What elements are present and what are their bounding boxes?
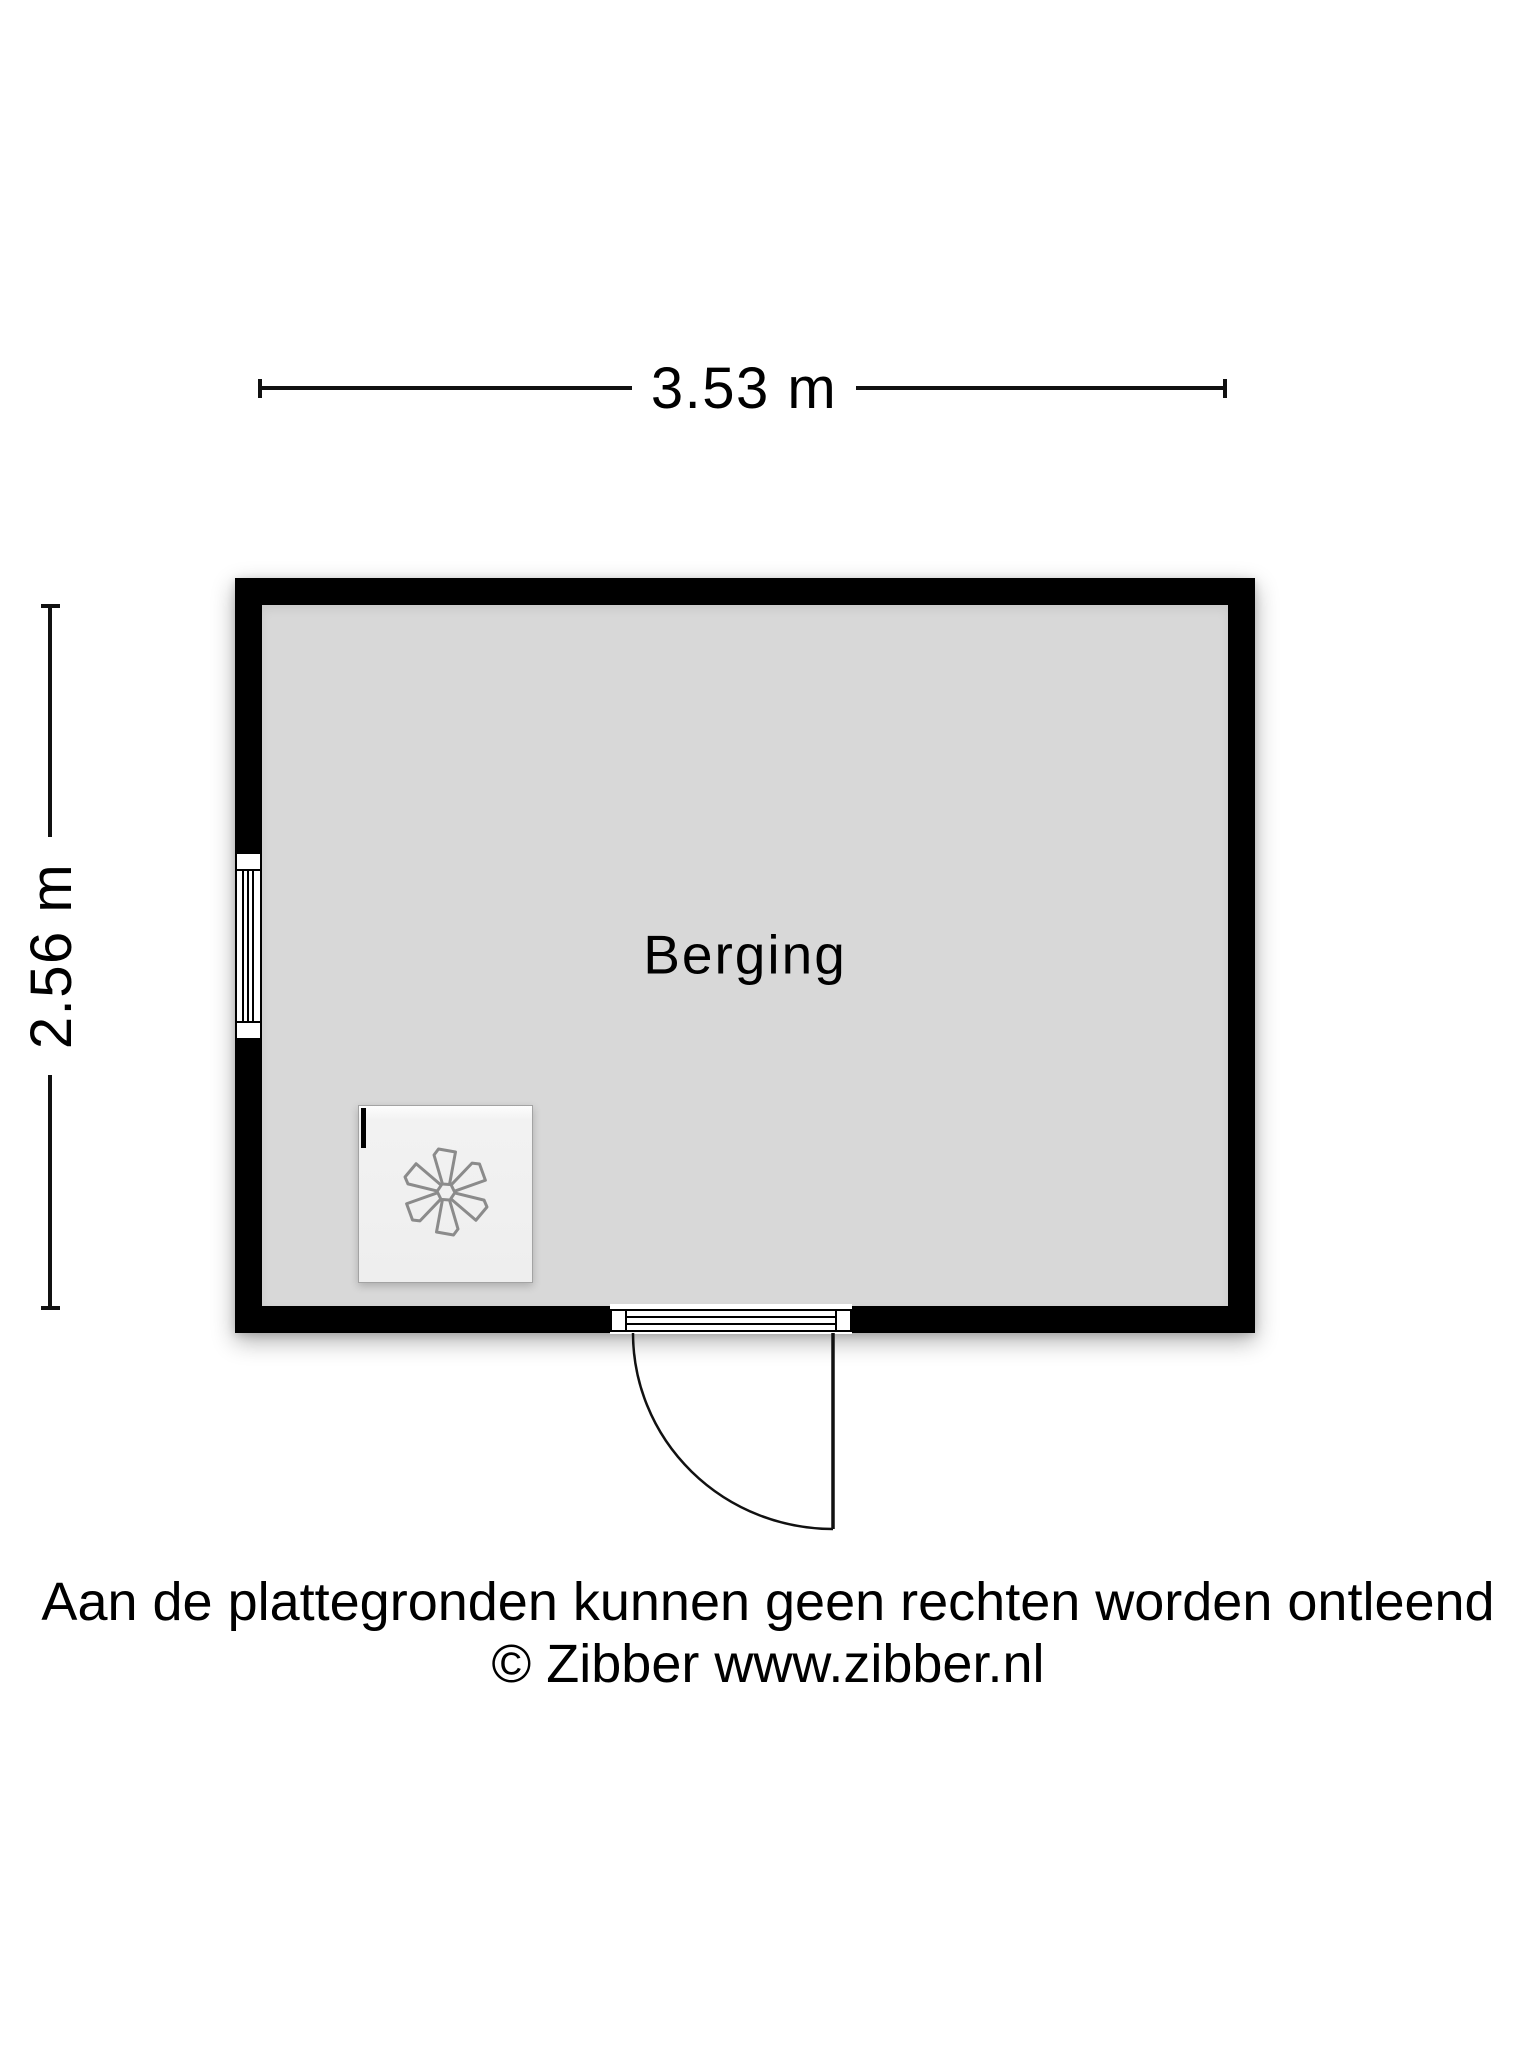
dimension-line (48, 1075, 52, 1308)
fan-icon (359, 1106, 532, 1282)
dimension-line (856, 386, 1227, 390)
dimension-line (48, 604, 52, 837)
floorplan-page: 3.53 m 2.56 m Berging (0, 0, 1536, 2048)
window-icon (235, 852, 262, 1040)
dimension-tick (41, 1306, 60, 1310)
window-pane-line (252, 871, 254, 1021)
dimension-line (258, 386, 632, 390)
copyright-text: © Zibber www.zibber.nl (0, 1634, 1536, 1694)
room-label: Berging (643, 922, 847, 986)
window-frame-line (237, 1021, 260, 1023)
appliance (358, 1105, 533, 1283)
width-dimension-label: 3.53 m (651, 360, 837, 418)
window-pane-line (242, 871, 244, 1021)
window-pane-line (247, 871, 249, 1021)
door-swing-arc (600, 1300, 900, 1560)
height-dimension-label: 2.56 m (23, 863, 81, 1049)
disclaimer-text: Aan de plattegronden kunnen geen rechten… (0, 1572, 1536, 1632)
dimension-tick (1223, 379, 1227, 398)
footer: Aan de plattegronden kunnen geen rechten… (0, 1572, 1536, 1694)
